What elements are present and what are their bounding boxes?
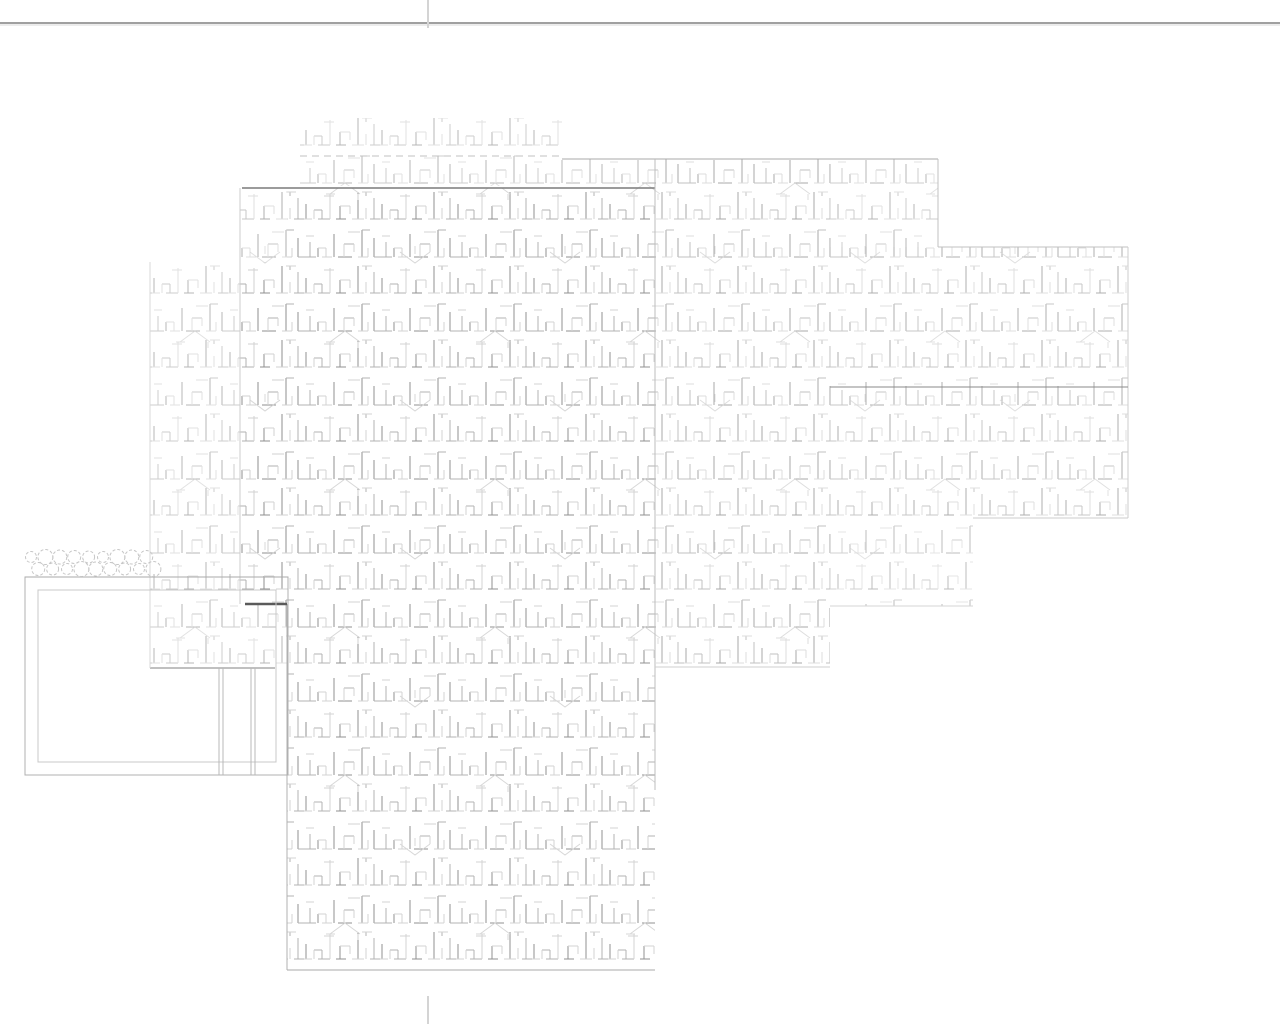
- shrub-symbol: [32, 563, 45, 576]
- arrow-overlay-upper-right: [830, 159, 938, 247]
- plot-sheet: [0, 0, 1280, 1024]
- arrow-overlay-top-strip: [300, 118, 562, 186]
- shrub-symbol: [104, 563, 117, 576]
- shrub-symbol: [89, 562, 103, 576]
- shrub-symbol: [47, 563, 59, 575]
- arrow-overlay-mid-right-bridge: [562, 159, 655, 188]
- shrub-symbol: [98, 552, 109, 563]
- arrow-overlay-right-extension: [830, 518, 973, 606]
- shrub-symbol: [134, 564, 145, 575]
- arrow-overlay-central-left-sliver: [240, 188, 287, 604]
- roof-plan-drawing: [0, 0, 1280, 1024]
- hatch-blocks: [150, 118, 1128, 970]
- shrub-symbol: [125, 550, 139, 564]
- arrow-overlay-central-main: [287, 188, 655, 970]
- arrow-overlay-mid-right: [655, 159, 830, 667]
- arrow-overlay-far-right: [830, 247, 1128, 518]
- shrub-symbol: [53, 550, 67, 564]
- shrub-symbol: [38, 550, 53, 565]
- shrub-symbol: [110, 550, 125, 565]
- shrub-symbol: [74, 562, 89, 577]
- shrub-symbol: [62, 564, 73, 575]
- shrub-symbol: [119, 563, 131, 575]
- shrub-symbol: [26, 552, 37, 563]
- shrub-symbol: [83, 551, 95, 563]
